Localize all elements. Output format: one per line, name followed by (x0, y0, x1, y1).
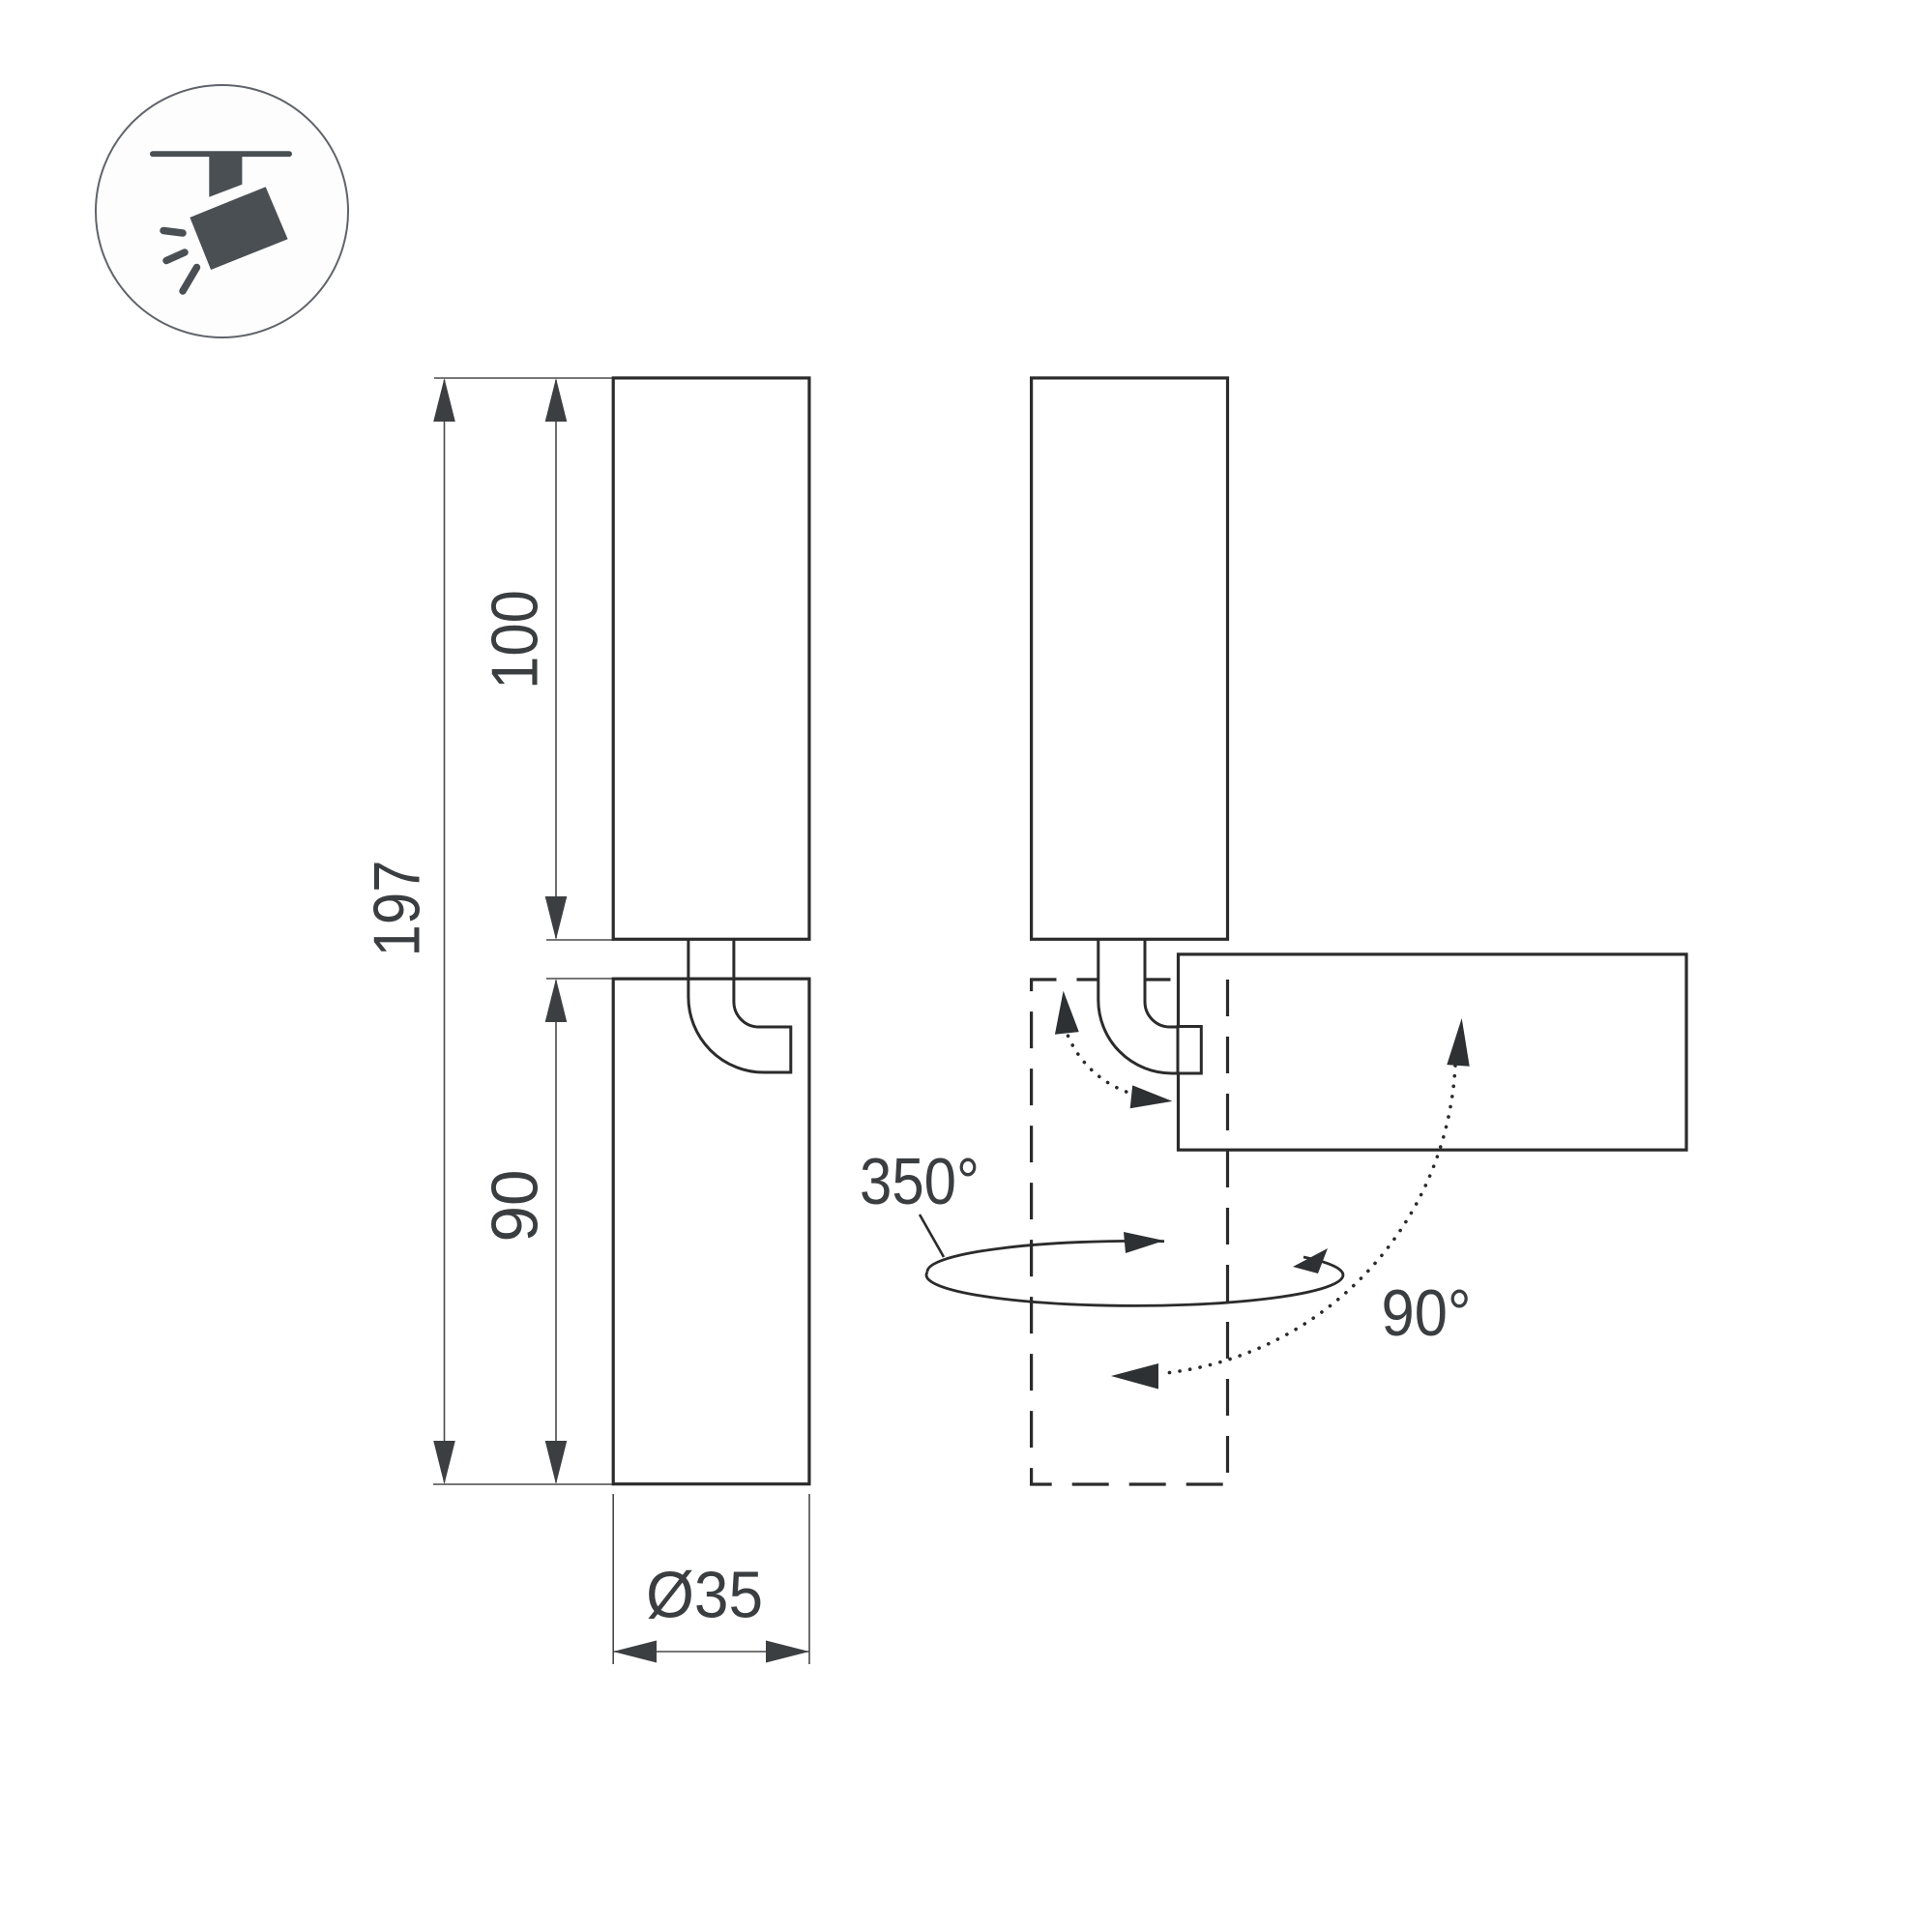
svg-text:90°: 90° (1382, 1276, 1472, 1350)
svg-text:90: 90 (479, 1170, 552, 1243)
svg-text:350°: 350° (860, 1145, 980, 1218)
svg-text:Ø35: Ø35 (646, 1559, 763, 1632)
svg-text:197: 197 (361, 861, 434, 957)
svg-text:100: 100 (479, 590, 552, 689)
